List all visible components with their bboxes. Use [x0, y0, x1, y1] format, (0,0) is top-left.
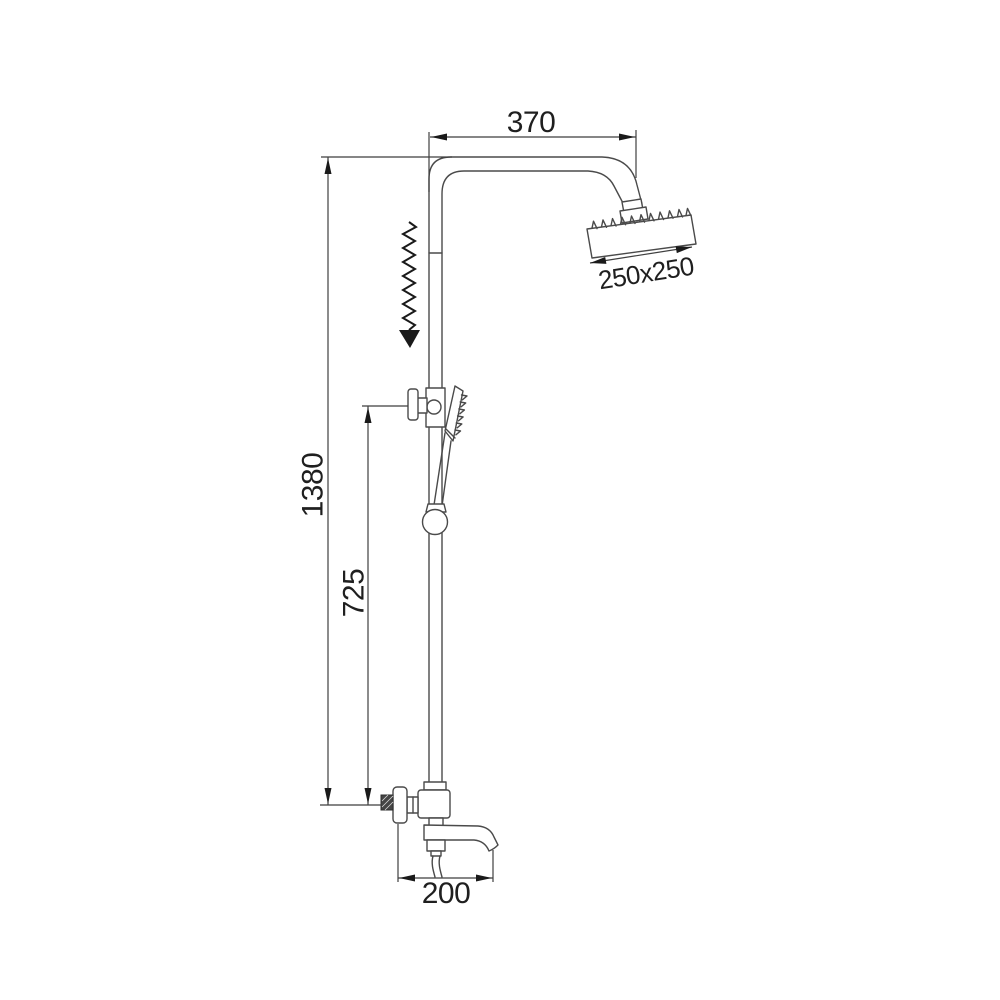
valve-handle [381, 787, 418, 823]
hose-fitting [427, 840, 445, 851]
hose-line-right [439, 856, 442, 877]
hand-shower-handle-right [442, 441, 451, 506]
dim-370-arrow-right [619, 134, 635, 141]
dim-label-370: 370 [507, 106, 556, 139]
dim-725-arrow-bottom [365, 788, 372, 804]
knob-flange [408, 389, 418, 420]
dim-370-arrow-left [431, 134, 447, 141]
valve-top-collar [424, 782, 446, 790]
zigzag-line [403, 222, 416, 330]
dim-label-1380: 1380 [297, 453, 330, 518]
handle-flange [393, 787, 407, 823]
shower-hose [427, 840, 445, 877]
slider-block [426, 388, 445, 427]
dim-1380-arrow-bottom [325, 788, 332, 804]
shower-system-dimension-drawing: 370 250x250 1380 725 [0, 0, 1000, 1000]
hose-line-left [432, 856, 435, 877]
down-arrow-icon [399, 330, 420, 348]
mixer-valve [418, 782, 450, 826]
dim-label-725: 725 [338, 569, 371, 618]
dim-1380-arrow-top [325, 158, 332, 174]
hose-ball-joint [423, 510, 448, 535]
drawing-canvas: 370 250x250 1380 725 [0, 0, 1000, 1000]
dim-label-250x250: 250x250 [596, 251, 696, 296]
dim-370: 370 [429, 106, 636, 192]
valve-body [418, 790, 450, 818]
hose-fitting-step [431, 851, 441, 856]
dim-725: 725 [338, 406, 409, 805]
dim-725-arrow-top [365, 407, 372, 423]
dim-200-arrow-right [476, 875, 492, 882]
dim-200-arrow-left [399, 875, 415, 882]
height-adjust-arrow [399, 222, 420, 348]
dim-label-200: 200 [422, 877, 471, 910]
slider-bracket [408, 388, 445, 427]
